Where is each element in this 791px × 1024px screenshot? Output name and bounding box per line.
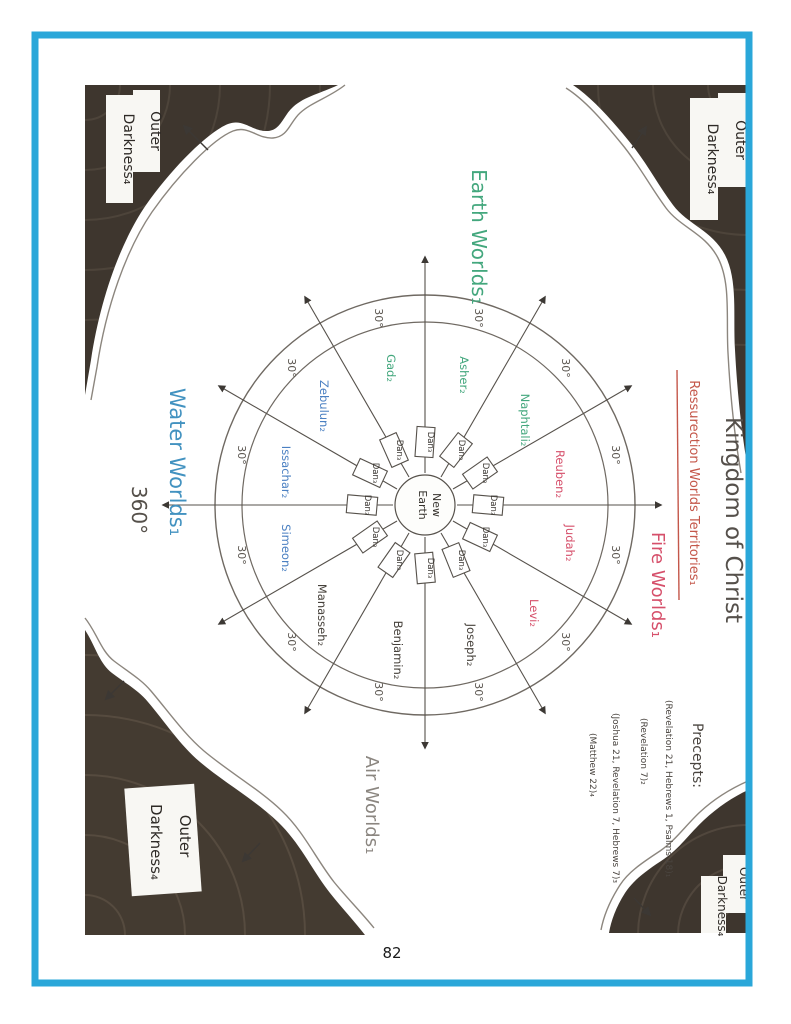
sector-degree-label: 30° <box>609 545 622 565</box>
tribe-label-manasseh: Manasseh₂ <box>315 584 329 646</box>
sector-degree-label: 30° <box>372 308 385 328</box>
sector-degree-label: 30° <box>472 308 485 328</box>
dan-box-label: Dan₃ <box>394 440 404 461</box>
precepts-line: (Joshua 21, Revelation 7, Hebrews 7)₃ <box>610 713 620 883</box>
dan-box-label: Dan₃ <box>425 432 435 453</box>
outer-darkness-label: Darkness₄ <box>147 804 165 880</box>
tribe-label-issachar: Issachar₂ <box>279 446 293 498</box>
sector-degree-label: 30° <box>235 445 248 465</box>
tribe-label-zebulun: Zebulun₂ <box>317 380 331 432</box>
precepts-line: (Revelation 21, Hebrews 1, Psalms 18)₁ <box>663 700 673 878</box>
hub-label: New <box>430 493 443 517</box>
tribe-label-asher: Asher₂ <box>457 356 471 394</box>
sector-degree-label: 30° <box>235 545 248 565</box>
tribe-label-reuben: Reuben₂ <box>553 450 567 498</box>
outer-darkness-label: Outer <box>176 815 194 858</box>
dan-box-label: Dan₃ <box>488 495 498 516</box>
tribe-label-benjamin: Benjamin₂ <box>391 621 405 680</box>
scanned-book-page: Outer Darkness₄ Outer Darkness₄ Out <box>0 0 791 1024</box>
dan-box-label: Dan₃ <box>370 527 380 548</box>
page-number: 82 <box>382 944 401 962</box>
dan-box <box>463 523 498 552</box>
dan-box <box>346 495 377 516</box>
earth-worlds-label: Earth Worlds₁ <box>467 169 491 305</box>
dan-box <box>472 495 503 516</box>
sector-degree-label: 30° <box>472 682 485 702</box>
dan-box <box>353 459 388 488</box>
sector-degree-label: 30° <box>559 358 572 378</box>
outer-darkness-top-left: Outer Darkness₄ <box>0 0 345 400</box>
sector-degree-label: 30° <box>285 358 298 378</box>
subtitle-underline <box>677 370 679 600</box>
outer-darkness-bottom-left: Outer Darkness₄ <box>0 618 374 1024</box>
tribe-label-levi: Levi₂ <box>527 599 541 627</box>
fire-worlds-label: Fire Worlds₁ <box>647 532 668 638</box>
territory-wheel: Dan₃ Dan₃ Dan₃ Dan₃ Dan₃ Dan₃ Dan₃ Dan₃ … <box>163 257 661 748</box>
dan-box-label: Dan₃ <box>362 495 372 516</box>
precepts-heading: Precepts: <box>689 723 705 788</box>
sector-degree-label: 30° <box>559 632 572 652</box>
dan-box <box>353 521 388 553</box>
full-circle-degree-label: 360° <box>127 486 151 534</box>
dan-box-label: Dan₃ <box>425 558 435 579</box>
outer-darkness-label: Darkness₄ <box>715 876 729 937</box>
tribe-label-judah: Judah₂ <box>563 524 577 562</box>
dan-box-label: Dan₃ <box>480 527 490 548</box>
dan-box <box>378 543 410 578</box>
water-worlds-label: Water Worlds₁ <box>165 388 189 536</box>
dan-box-label: Dan₃ <box>370 463 380 484</box>
outer-darkness-label: Outer <box>147 111 163 151</box>
tribe-label-simeon: Simeon₂ <box>279 524 293 572</box>
tribe-label-gad: Gad₂ <box>384 354 398 382</box>
dan-box-label: Dan₃ <box>456 550 466 571</box>
dan-box-label: Dan₃ <box>456 440 466 461</box>
darkness-shape <box>85 630 365 935</box>
dan-box-label: Dan₃ <box>394 550 404 571</box>
sector-degree-label: 30° <box>372 682 385 702</box>
outer-darkness-label: Darkness₄ <box>704 124 720 195</box>
precepts-line: (Revelation 7)₂ <box>638 718 648 785</box>
outer-darkness-bottom-right: Outer Darkness₄ <box>598 781 791 1024</box>
diagram-canvas: Outer Darkness₄ Outer Darkness₄ Out <box>0 0 791 1024</box>
tribe-label-naphtali: Naphtali₂ <box>518 394 532 447</box>
dan-box-label: Dan₃ <box>480 463 490 484</box>
hub-label: Earth <box>416 490 429 520</box>
outer-darkness-label: Darkness₄ <box>120 114 136 185</box>
precepts-line: (Matthew 22)₄ <box>587 733 597 797</box>
page-title: Kingdom of Christ <box>720 417 746 623</box>
air-worlds-label: Air Worlds₁ <box>361 756 382 855</box>
page-subtitle: Ressurection Worlds Territories₁ <box>686 380 701 585</box>
dan-box <box>463 457 498 489</box>
dan-box <box>440 433 473 468</box>
sector-degree-label: 30° <box>285 632 298 652</box>
sector-degree-label: 30° <box>609 445 622 465</box>
tribe-label-joseph: Joseph₂ <box>464 623 478 667</box>
